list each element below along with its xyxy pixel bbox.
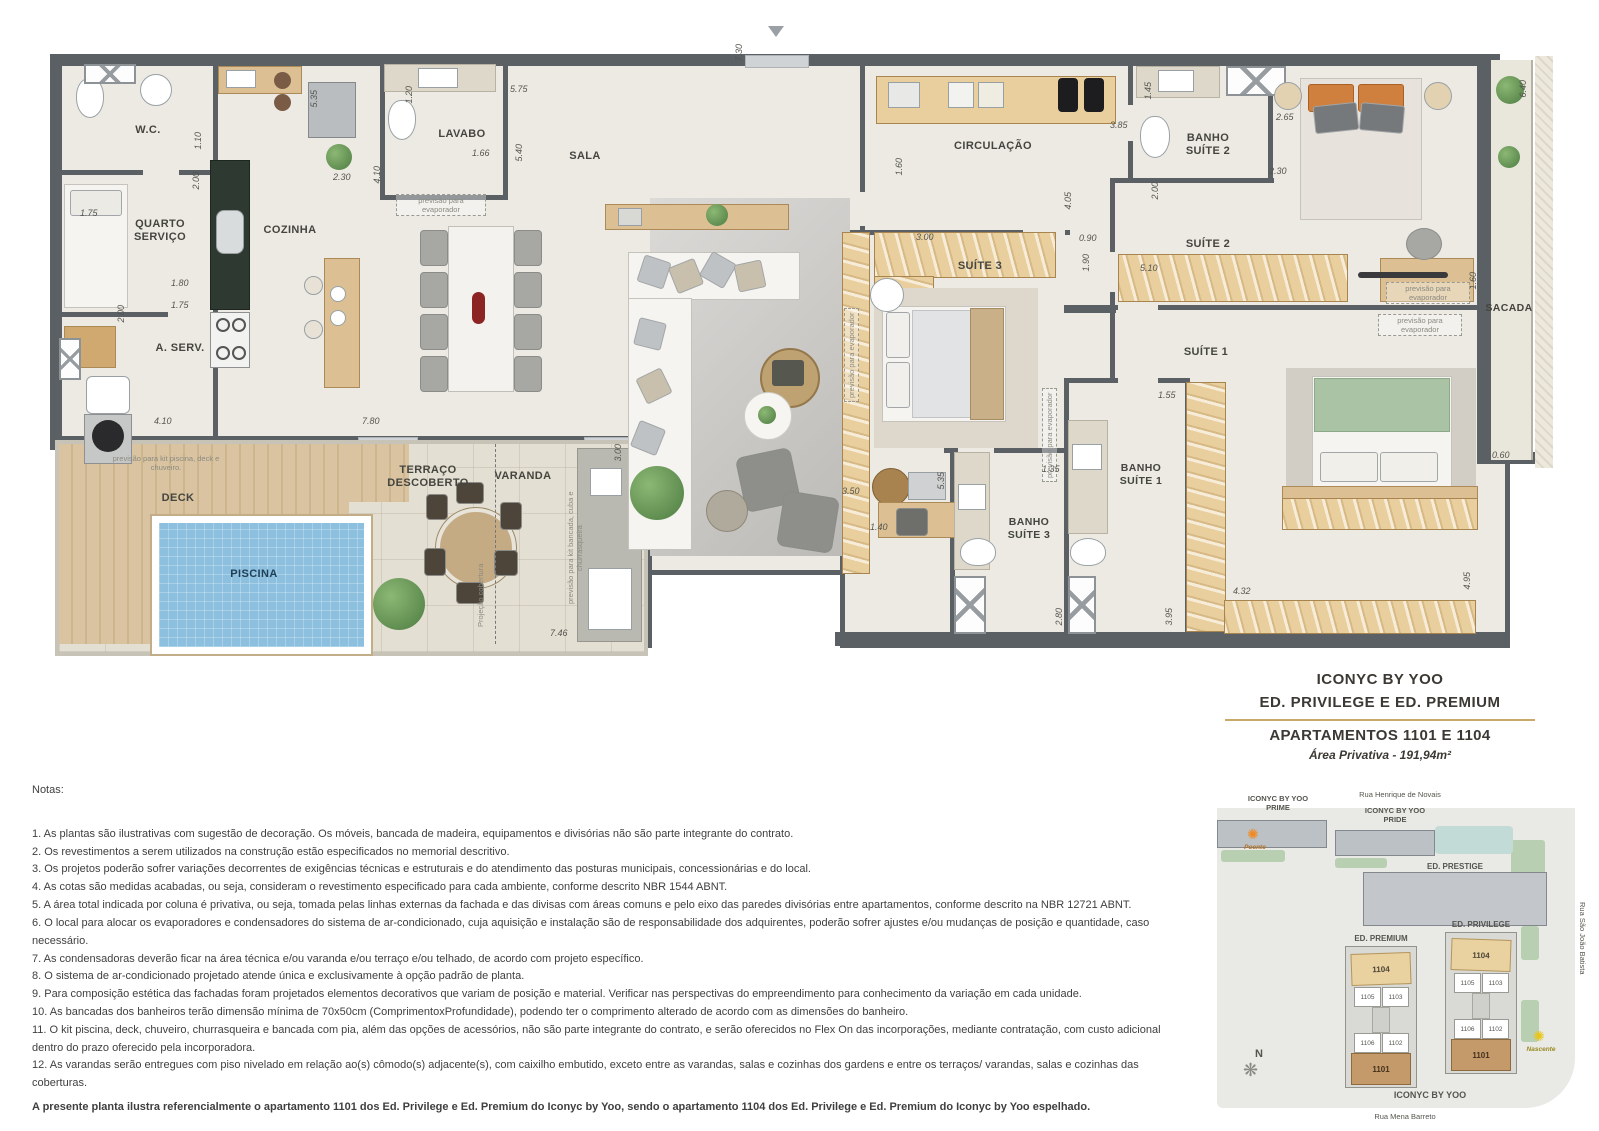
unit-1106: 1106 <box>1354 1033 1381 1053</box>
dim-label: 2.00 <box>1150 182 1160 200</box>
dim-label: 4.05 <box>1063 192 1073 210</box>
label-lavabo: LAVABO <box>422 128 502 141</box>
projecao-note: Projeção cobertura <box>476 550 485 640</box>
note-item: 4. As cotas são medidas acabadas, ou sej… <box>32 879 1182 897</box>
note-item: 1. As plantas são ilustrativas com suges… <box>32 826 1182 844</box>
note-item: 11. O kit piscina, deck, chuveiro, churr… <box>32 1022 1182 1058</box>
unit-1102: 1102 <box>1482 1019 1509 1039</box>
sun-west-label: Poente <box>1233 844 1277 851</box>
unit-1103: 1103 <box>1382 987 1409 1007</box>
bldg-prestige <box>1363 872 1547 926</box>
suite2-closet <box>1118 254 1348 302</box>
unit-1106: 1106 <box>1454 1019 1481 1039</box>
dim-label: 5.35 <box>309 90 319 108</box>
compass-n: N <box>1249 1048 1269 1060</box>
dim-label: 3.95 <box>1164 608 1174 626</box>
bldg-prestige-label: ED. PRESTIGE <box>1405 862 1505 871</box>
note-item: 5. A área total indicada por coluna é pr… <box>32 897 1182 915</box>
unit-1101: 1101 <box>1351 1053 1411 1085</box>
notes-heading: Notas: <box>32 782 1182 800</box>
site-map: Rua Henrique de Novais Rua São João Bati… <box>1205 768 1599 1128</box>
dim-label: 2.80 <box>1054 608 1064 626</box>
notes-block: Notas: 1. As plantas são ilustrativas co… <box>32 782 1182 1117</box>
divider <box>1225 719 1535 721</box>
dim-label: 7.30 <box>734 44 744 62</box>
hall-floor <box>1070 230 1110 378</box>
exterior-border <box>1535 56 1553 468</box>
dim-label: 4.95 <box>1462 572 1472 590</box>
tower-premium: 1104 1105 1103 1106 1102 1101 <box>1345 946 1417 1088</box>
evaporador-note: previsão para evaporador <box>1378 314 1462 336</box>
label-suite2: SUÍTE 2 <box>1168 238 1248 251</box>
dim-label: 5.35 <box>936 472 946 490</box>
dim-label: 7.80 <box>362 416 380 426</box>
shower <box>1068 576 1096 634</box>
tower-privilege: 1104 1105 1103 1106 1102 1101 <box>1445 932 1517 1074</box>
dim-label: 7.46 <box>550 628 568 638</box>
compass-rose-icon: ❋ <box>1243 1060 1258 1081</box>
dim-label: 5.40 <box>514 144 524 162</box>
label-sacada: SACADA <box>1466 302 1552 315</box>
label-banho-suite3: BANHO SUÍTE 3 <box>996 516 1062 541</box>
armchair <box>776 490 840 554</box>
suite1-closet-bottom <box>1224 600 1476 634</box>
dim-label: 4.10 <box>154 416 172 426</box>
title-block: ICONYC BY YOO ED. PRIVILEGE E ED. PREMIU… <box>1225 668 1535 762</box>
dim-label: 4.32 <box>1233 586 1251 596</box>
unit-1101: 1101 <box>1451 1039 1511 1071</box>
dim-label: 1.10 <box>193 132 203 150</box>
unit-1105: 1105 <box>1454 973 1481 993</box>
dim-label: 6.40 <box>1518 80 1528 98</box>
dim-label: 1.45 <box>1143 82 1153 100</box>
unit-1102: 1102 <box>1382 1033 1409 1053</box>
suite3-wardrobe <box>842 232 870 574</box>
dim-label: 1.60 <box>894 158 904 176</box>
dim-label: 1.55 <box>1158 390 1176 400</box>
dim-label: 5.75 <box>510 84 528 94</box>
dim-label: 1.40 <box>870 522 888 532</box>
dim-label: 1.35 <box>1042 464 1060 474</box>
dim-label: 0.90 <box>1079 233 1097 243</box>
note-item: 8. O sistema de ar-condicionado projetad… <box>32 968 1182 986</box>
sun-west-icon: ✺ <box>1247 826 1259 843</box>
evaporador-note: previsão para evaporador <box>844 308 859 402</box>
note-item: 10. As bancadas dos banheiros terão dime… <box>32 1004 1182 1022</box>
sun-east-icon: ✺ <box>1533 1028 1545 1045</box>
label-cozinha: COZINHA <box>250 224 330 237</box>
dim-label: 1.66 <box>472 148 490 158</box>
street-bottom: Rua Mena Barreto <box>1325 1112 1485 1121</box>
label-circulacao: CIRCULAÇÃO <box>933 140 1053 153</box>
dim-label: 3.00 <box>916 232 934 242</box>
apartments-title: APARTAMENTOS 1101 E 1104 <box>1225 727 1535 744</box>
dim-label: 2.65 <box>1276 112 1294 122</box>
pool <box>152 516 371 654</box>
unit-1103: 1103 <box>1482 973 1509 993</box>
notes-list: 1. As plantas são ilustrativas com suges… <box>32 826 1182 1093</box>
bldg-prime-label: ICONYC BY YOO PRIME <box>1223 794 1333 812</box>
unit-1104: 1104 <box>1450 938 1511 972</box>
label-suite3: SUÍTE 3 <box>940 260 1020 273</box>
dim-label: 1.75 <box>80 208 98 218</box>
bldg-privilege-label: ED. PRIVILEGE <box>1433 920 1529 929</box>
unit-1105: 1105 <box>1354 987 1381 1007</box>
dim-label: 2.00 <box>116 305 126 323</box>
label-aserv: A. SERV. <box>140 342 220 355</box>
dim-label: 1.20 <box>404 86 414 104</box>
note-item: 3. Os projetos poderão sofrer variações … <box>32 861 1182 879</box>
dim-label: 3.85 <box>1110 120 1128 130</box>
evaporador-note: previsão para evaporador <box>396 194 486 216</box>
street-right: Rua São João Batista <box>1573 878 1587 998</box>
note-item: 7. As condensadoras deverão ficar na áre… <box>32 951 1182 969</box>
note-item: 12. As varandas serão entregues com piso… <box>32 1057 1182 1093</box>
label-suite1: SUÍTE 1 <box>1166 346 1246 359</box>
bldg-premium-label: ED. PREMIUM <box>1333 934 1429 943</box>
bldg-pride-label: ICONYC BY YOO PRIDE <box>1345 806 1445 824</box>
unit-1104: 1104 <box>1350 952 1411 986</box>
note-item: 2. Os revestimentos a serem utilizados n… <box>32 844 1182 862</box>
kit-bancada-note: previsão para kit bancada, cuba e churra… <box>566 468 584 628</box>
private-area: Área Privativa - 191,94m² <box>1225 748 1535 762</box>
label-varanda: VARANDA <box>486 470 560 483</box>
bldg-pride <box>1335 830 1435 856</box>
evaporador-note: previsão para evaporador <box>1386 282 1470 304</box>
label-banho-suite2: BANHO SUÍTE 2 <box>1168 132 1248 158</box>
dim-label: 1.60 <box>1468 272 1478 290</box>
dim-label: 1.75 <box>171 300 189 310</box>
label-sala: SALA <box>550 150 620 163</box>
dim-label: 0.60 <box>1492 450 1510 460</box>
bldg-complex-label: ICONYC BY YOO <box>1355 1090 1505 1100</box>
project-name: ICONYC BY YOO <box>1225 668 1535 691</box>
label-piscina: PISCINA <box>214 568 294 581</box>
dim-label: 1.80 <box>171 278 189 288</box>
street-top: Rua Henrique de Novais <box>1315 790 1485 799</box>
dim-label: 4.10 <box>372 166 382 184</box>
sacada-floor <box>1491 60 1533 460</box>
label-quarto-servico: QUARTO SERVIÇO <box>120 218 200 244</box>
sun-east-label: Nascente <box>1519 1046 1563 1053</box>
entrance-door <box>745 55 809 68</box>
dim-label: 2.30 <box>333 172 351 182</box>
dim-label: 1.90 <box>1081 254 1091 272</box>
suite1-closet-left <box>1186 382 1226 632</box>
dim-label: 2.30 <box>1269 166 1287 176</box>
floor-plan: previsão para evaporador <box>28 20 1573 675</box>
kit-piscina-note: previsão para kit piscina, deck e chuvei… <box>100 454 232 472</box>
entrance-arrow-icon <box>768 26 784 37</box>
dim-label: 5.10 <box>1140 263 1158 273</box>
dim-label: 2.00 <box>191 172 201 190</box>
label-wc: W.C. <box>113 124 183 137</box>
buildings-name: ED. PRIVILEGE E ED. PREMIUM <box>1225 691 1535 714</box>
label-terraco: TERRAÇO DESCOBERTO <box>380 464 476 490</box>
label-banho-suite1: BANHO SUÍTE 1 <box>1106 462 1176 487</box>
dim-label: 3.00 <box>613 444 623 462</box>
dim-label: 3.50 <box>842 486 860 496</box>
note-item: 6. O local para alocar os evaporadores e… <box>32 915 1182 951</box>
note-item: 9. Para composição estética das fachadas… <box>32 986 1182 1004</box>
shaft-icon <box>84 64 136 84</box>
label-deck: DECK <box>146 492 210 505</box>
shower <box>954 576 986 634</box>
